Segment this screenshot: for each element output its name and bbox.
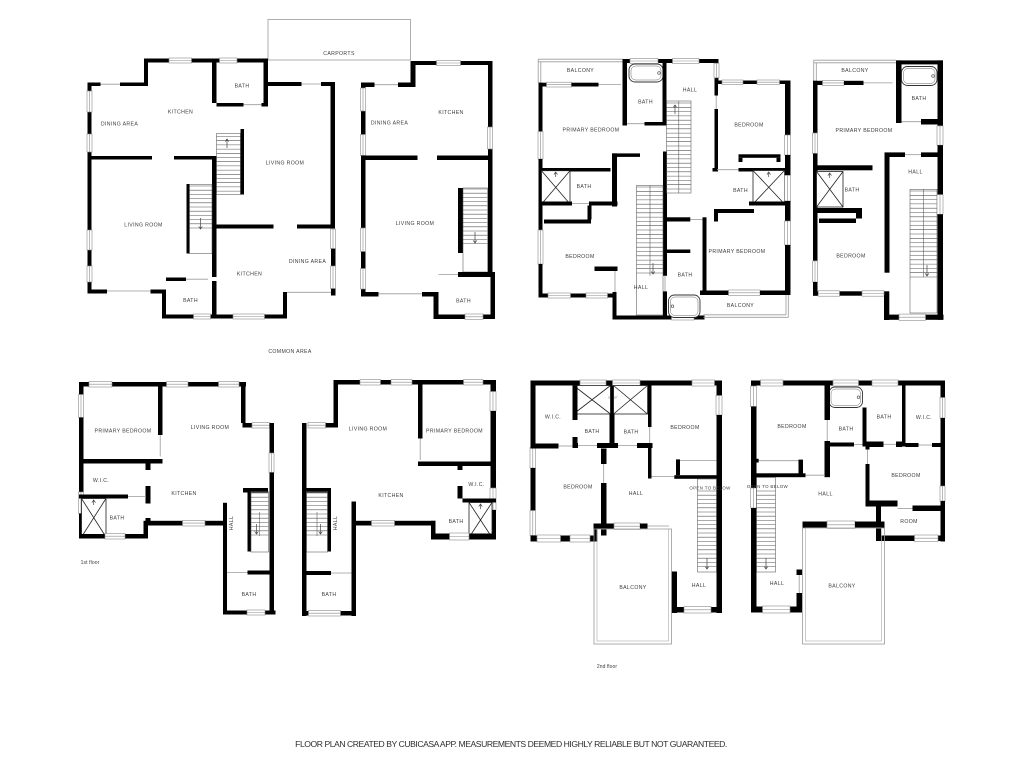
svg-text:BEDROOM: BEDROOM — [734, 123, 763, 129]
svg-text:LIVING ROOM: LIVING ROOM — [191, 425, 229, 431]
svg-text:W.I.C.: W.I.C. — [93, 478, 109, 484]
svg-text:BATH: BATH — [235, 84, 250, 90]
svg-text:BATH: BATH — [322, 592, 337, 598]
svg-text:BALCONY: BALCONY — [727, 303, 754, 309]
svg-text:OPEN TO BELOW: OPEN TO BELOW — [689, 486, 731, 491]
svg-text:BATH: BATH — [638, 100, 653, 106]
svg-text:PRIMARY BEDROOM: PRIMARY BEDROOM — [95, 429, 152, 435]
svg-text:HALL: HALL — [333, 516, 339, 530]
svg-text:BALCONY: BALCONY — [619, 585, 646, 591]
svg-text:BEDROOM: BEDROOM — [836, 254, 865, 260]
svg-text:KITCHEN: KITCHEN — [237, 272, 262, 278]
svg-text:OPEN TO BELOW: OPEN TO BELOW — [747, 484, 789, 489]
svg-text:BEDROOM: BEDROOM — [565, 254, 594, 260]
svg-text:BATH: BATH — [839, 427, 854, 433]
svg-text:HALL: HALL — [629, 491, 643, 497]
svg-text:DINING AREA: DINING AREA — [289, 259, 326, 265]
svg-text:BALCONY: BALCONY — [567, 68, 594, 74]
svg-text:BATH: BATH — [183, 298, 198, 304]
svg-text:KITCHEN: KITCHEN — [438, 110, 463, 116]
svg-text:BATH: BATH — [733, 188, 748, 194]
svg-text:BEDROOM: BEDROOM — [777, 424, 806, 430]
svg-text:LIVING ROOM: LIVING ROOM — [349, 427, 387, 433]
svg-text:DINING AREA: DINING AREA — [101, 122, 138, 128]
svg-text:KITCHEN: KITCHEN — [168, 110, 193, 116]
svg-text:KITCHEN: KITCHEN — [171, 491, 196, 497]
svg-text:HALL: HALL — [770, 581, 784, 587]
svg-text:PRIMARY BEDROOM: PRIMARY BEDROOM — [836, 128, 893, 134]
svg-text:BATH: BATH — [585, 429, 600, 435]
svg-text:BATH: BATH — [577, 184, 592, 190]
svg-text:LIVING ROOM: LIVING ROOM — [124, 223, 162, 229]
svg-text:BATH: BATH — [242, 592, 257, 598]
svg-text:HALL: HALL — [818, 492, 832, 498]
svg-text:LIVING ROOM: LIVING ROOM — [266, 161, 304, 167]
svg-text:BATH: BATH — [456, 299, 471, 305]
svg-text:W.I.C.: W.I.C. — [545, 415, 561, 421]
svg-text:BALCONY: BALCONY — [841, 68, 868, 74]
svg-text:BATH: BATH — [110, 516, 125, 522]
svg-text:PRIMARY BEDROOM: PRIMARY BEDROOM — [709, 249, 766, 255]
svg-text:PRIMARY BEDROOM: PRIMARY BEDROOM — [426, 429, 483, 435]
svg-text:W.I.C.: W.I.C. — [468, 482, 484, 488]
svg-text:BATH: BATH — [877, 415, 892, 421]
svg-text:BATH: BATH — [449, 519, 464, 525]
svg-text:DINING AREA: DINING AREA — [371, 121, 408, 127]
svg-text:BEDROOM: BEDROOM — [891, 473, 920, 479]
svg-text:COMMON AREA: COMMON AREA — [268, 349, 312, 355]
svg-text:BATH: BATH — [912, 96, 927, 102]
svg-text:BATH: BATH — [624, 430, 639, 436]
svg-text:KITCHEN: KITCHEN — [378, 493, 403, 499]
svg-text:BEDROOM: BEDROOM — [670, 425, 699, 431]
svg-text:PRIMARY BEDROOM: PRIMARY BEDROOM — [563, 128, 620, 134]
svg-text:HALL: HALL — [683, 88, 697, 94]
svg-text:BATH: BATH — [845, 188, 860, 194]
svg-text:BALCONY: BALCONY — [828, 584, 855, 590]
svg-text:ROOM: ROOM — [900, 519, 918, 525]
svg-text:BEDROOM: BEDROOM — [563, 485, 592, 491]
svg-text:2nd floor: 2nd floor — [597, 664, 618, 670]
svg-text:HALL: HALL — [634, 285, 648, 291]
svg-text:BATH: BATH — [678, 273, 693, 279]
svg-text:HALL: HALL — [229, 516, 235, 530]
svg-text:1st floor: 1st floor — [81, 560, 100, 566]
svg-text:FLOOR PLAN CREATED BY CUBICASA: FLOOR PLAN CREATED BY CUBICASA APP. MEAS… — [295, 739, 727, 749]
svg-text:CARPORTS: CARPORTS — [323, 51, 355, 57]
svg-text:HALL: HALL — [692, 583, 706, 589]
svg-text:LIVING ROOM: LIVING ROOM — [396, 221, 434, 227]
svg-text:HALL: HALL — [908, 170, 922, 176]
svg-text:W.I.C.: W.I.C. — [916, 415, 932, 421]
